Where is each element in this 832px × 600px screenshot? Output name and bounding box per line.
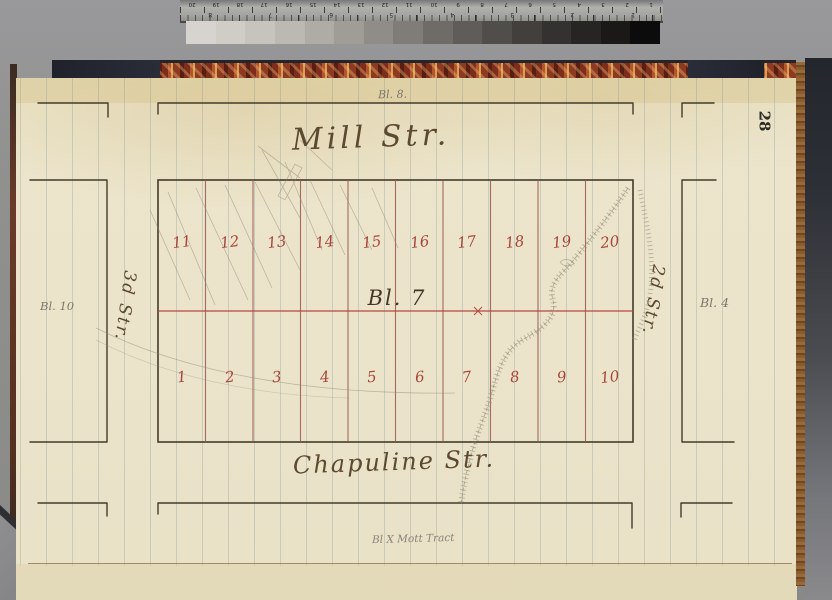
list-item: 5 [346,359,397,395]
list-item: 15 [346,224,397,260]
list-item: 2 [204,359,255,395]
pencil-note-bl4: Bl. 4 [700,295,729,310]
list-item: 8 [489,359,540,395]
photographed-ledger-map: 2019181716151413121110987654321 87654321 [0,0,832,600]
list-item: 1 [156,359,207,395]
list-item: 4 [299,359,350,395]
page-number: 28 [755,111,773,132]
list-item: 9 [536,359,587,395]
list-item: 13 [251,224,302,260]
list-item: 12 [204,224,255,260]
lot-numbers-upper-row: 11121314151617181920 [158,227,633,257]
block-label-bl7: Bl. 7 [352,286,442,310]
list-item: 19 [536,224,587,260]
pencil-note-bl10: Bl. 10 [40,299,74,313]
list-item: 7 [441,359,492,395]
list-item: 20 [584,224,635,260]
list-item: 11 [156,224,207,260]
list-item: 6 [394,359,445,395]
list-item: 18 [489,224,540,260]
list-item: 10 [584,359,635,395]
list-item: 16 [394,224,445,260]
list-item: 17 [441,224,492,260]
list-item: 3 [251,359,302,395]
pencil-note-mott-tract: Bl X Mott Tract [372,532,455,546]
pencil-note-bl8: Bl. 8. [378,88,407,102]
list-item: 14 [299,224,350,260]
lot-numbers-lower-row: 12345678910 [158,362,633,392]
